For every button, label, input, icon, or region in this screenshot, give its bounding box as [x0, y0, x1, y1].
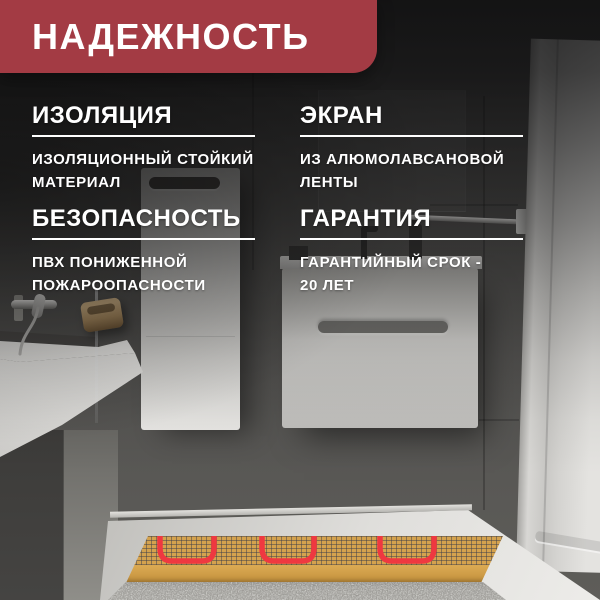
feature-line: ПОЖАРООПАСНОСТИ	[32, 274, 272, 297]
feature-description: ИЗОЛЯЦИОННЫЙ СТОЙКИЙ МАТЕРИАЛ	[32, 148, 272, 194]
shower-hose	[8, 302, 48, 362]
feature-line: МАТЕРИАЛ	[32, 171, 272, 194]
soap-dish-slot	[87, 303, 116, 315]
feature-line: 20 ЛЕТ	[300, 274, 540, 297]
wooden-soap-dish	[80, 297, 124, 333]
feature-description: ПВХ ПОНИЖЕННОЙ ПОЖАРООПАСНОСТИ	[32, 251, 272, 297]
feature-title: ИЗОЛЯЦИЯ	[32, 102, 272, 129]
feature-divider	[300, 135, 523, 137]
feature-description: ИЗ АЛЮМОЛАВСАНОВОЙ ЛЕНТЫ	[300, 148, 540, 194]
feature-line: ИЗ АЛЮМОЛАВСАНОВОЙ	[300, 148, 540, 171]
feature-insulation: ИЗОЛЯЦИЯ ИЗОЛЯЦИОННЫЙ СТОЙКИЙ МАТЕРИАЛ	[32, 102, 272, 194]
page-title: НАДЕЖНОСТЬ	[0, 0, 377, 56]
feature-divider	[32, 238, 255, 240]
tile-seam	[479, 419, 519, 421]
feature-description: ГАРАНТИЙНЫЙ СРОК - 20 ЛЕТ	[300, 251, 540, 297]
promo-image: НАДЕЖНОСТЬ ИЗОЛЯЦИЯ ИЗОЛЯЦИОННЫЙ СТОЙКИЙ…	[0, 0, 600, 600]
feature-divider	[32, 135, 255, 137]
feature-line: ГАРАНТИЙНЫЙ СРОК -	[300, 251, 540, 274]
feature-safety: БЕЗОПАСНОСТЬ ПВХ ПОНИЖЕННОЙ ПОЖАРООПАСНО…	[32, 205, 272, 297]
heating-cable-loops	[126, 535, 506, 583]
vanity-handle	[318, 321, 448, 333]
heating-mat	[126, 535, 506, 583]
feature-line: ИЗОЛЯЦИОННЫЙ СТОЙКИЙ	[32, 148, 272, 171]
feature-screen: ЭКРАН ИЗ АЛЮМОЛАВСАНОВОЙ ЛЕНТЫ	[300, 102, 540, 194]
feature-warranty: ГАРАНТИЯ ГАРАНТИЙНЫЙ СРОК - 20 ЛЕТ	[300, 205, 540, 297]
feature-line: ПВХ ПОНИЖЕННОЙ	[32, 251, 272, 274]
feature-line: ЛЕНТЫ	[300, 171, 540, 194]
feature-title: ЭКРАН	[300, 102, 540, 129]
feature-divider	[300, 238, 523, 240]
cabinet-seam	[146, 336, 235, 337]
title-banner: НАДЕЖНОСТЬ	[0, 0, 377, 73]
feature-title: БЕЗОПАСНОСТЬ	[32, 205, 272, 232]
door-moulding	[542, 39, 559, 571]
feature-title: ГАРАНТИЯ	[300, 205, 540, 232]
